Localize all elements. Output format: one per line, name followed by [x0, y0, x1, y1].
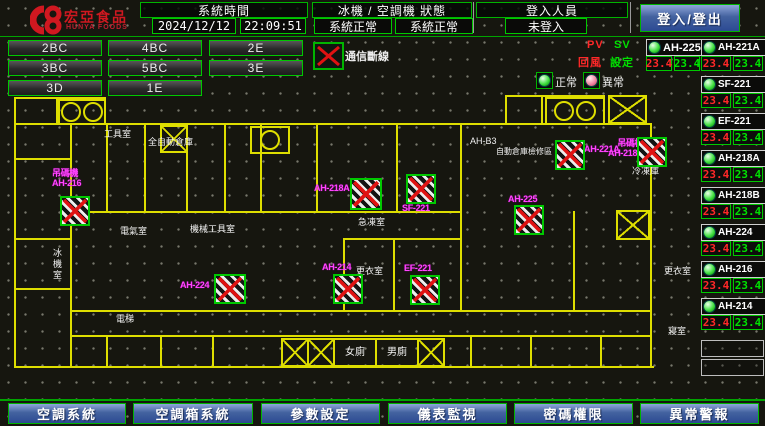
normal-legend-label: 正常	[555, 74, 577, 90]
sv-header: SV	[614, 39, 631, 51]
wall	[14, 97, 16, 368]
room-label: 冷凍庫	[632, 166, 659, 176]
sv-value: 23.4	[733, 130, 763, 145]
brand-name-en: HUNYA FOODS	[66, 24, 128, 31]
offline-device-icon-ah-225[interactable]	[514, 205, 544, 235]
device-label: AH-214	[322, 262, 351, 272]
pv-value: 23.4	[701, 278, 731, 293]
room-label: 自動倉庫檢修區	[496, 147, 552, 157]
nav-parameter-setting[interactable]: 參數設定	[261, 403, 380, 424]
bottombar-separator	[0, 399, 765, 401]
sv-value: 23.4	[733, 241, 763, 256]
floor-button-3d[interactable]: 3D	[8, 80, 102, 96]
normal-lamp-icon	[536, 72, 553, 89]
wall	[316, 123, 318, 213]
pv-header: PV	[587, 39, 604, 51]
room-label: 電梯	[116, 314, 134, 324]
toilet-room: 女廁	[333, 338, 377, 367]
sv-value: 23.4	[733, 315, 763, 330]
pv-value: 23.4	[701, 130, 731, 145]
unit-ah-218a[interactable]: AH-218A	[701, 150, 765, 167]
wall	[70, 310, 652, 312]
elevator-shaft-icon	[608, 95, 647, 124]
wall	[541, 95, 543, 125]
wall	[14, 158, 72, 160]
empty-slot	[701, 359, 764, 376]
elevator-shaft-icon	[616, 210, 650, 240]
header-divider	[630, 2, 631, 33]
wall	[212, 335, 214, 366]
room-label: 急凍室	[358, 217, 385, 227]
pv-value: 23.4	[701, 204, 731, 219]
offline-device-icon-ef-221[interactable]	[410, 275, 440, 305]
unit-ah-216[interactable]: AH-216	[701, 261, 765, 278]
wall	[224, 123, 226, 213]
room-label: 男廁	[387, 348, 407, 358]
wall	[600, 335, 602, 366]
offline-device-icon-ah-221a[interactable]	[555, 140, 585, 170]
pv-value: 23.4	[701, 241, 731, 256]
floor-button-4bc[interactable]: 4BC	[108, 40, 202, 56]
unit-ah-224[interactable]: AH-224	[701, 224, 765, 241]
device-label: 吊碼機AH-216	[52, 168, 81, 188]
wall	[160, 335, 162, 366]
status-lamp-icon	[704, 264, 715, 275]
login-label: 登入人員	[476, 2, 628, 18]
offline-device-icon-ah-214[interactable]	[333, 274, 363, 304]
room-label: AH-B3	[470, 136, 497, 146]
offline-device-icon-sf-221[interactable]	[406, 174, 436, 204]
nav-ahu-system[interactable]: 空調箱系統	[133, 403, 253, 424]
abnormal-lamp-icon	[583, 72, 600, 89]
wall	[343, 238, 462, 240]
system-time-label: 系統時間	[140, 2, 308, 18]
unit-ef-221[interactable]: EF-221	[701, 113, 765, 130]
sv-value: 23.4	[674, 56, 700, 71]
status-lamp-icon	[704, 153, 715, 164]
offline-legend-label: 通信斷線	[345, 48, 389, 64]
status-lamp-icon	[649, 42, 660, 53]
topbar-separator	[0, 36, 765, 37]
floor-button-5bc[interactable]: 5BC	[108, 60, 202, 76]
status-lamp-icon	[704, 301, 715, 312]
login-logout-button[interactable]: 登入/登出	[640, 4, 740, 32]
room-label: 寢室	[668, 326, 686, 336]
pv-value: 23.4	[701, 56, 731, 71]
offline-device-icon-ah-224[interactable]	[214, 274, 246, 304]
logo-icon	[30, 5, 64, 35]
unit-sf-221[interactable]: SF-221	[701, 76, 765, 93]
pv-row-label: 回風	[578, 54, 602, 70]
sv-value: 23.4	[733, 167, 763, 182]
room-label: 冰機室	[52, 248, 62, 281]
offline-legend-icon	[313, 42, 344, 70]
unit-ah-218b[interactable]: AH-218B	[701, 187, 765, 204]
pv-value: 23.4	[701, 93, 731, 108]
nav-hvac-system[interactable]: 空調系統	[8, 403, 126, 424]
room-label: 機械工具室	[190, 224, 235, 234]
logo: 宏亞食品 HUNYA FOODS	[2, 2, 137, 36]
wall	[460, 123, 462, 312]
wall	[144, 123, 146, 213]
device-label: AH-225	[508, 194, 537, 204]
machine-status-label: 冰機 / 空調機 狀態	[312, 2, 472, 18]
status-lamp-icon	[704, 116, 715, 127]
wall	[573, 211, 575, 310]
wall	[14, 238, 72, 240]
stairwell-icon	[417, 338, 445, 367]
offline-device-icon-ah-218b[interactable]	[637, 137, 667, 167]
unit-ah-225[interactable]: AH-225	[646, 39, 703, 56]
wall	[70, 335, 652, 337]
hmi-screen: 宏亞食品 HUNYA FOODS 系統時間 2024/12/12 22:09:5…	[0, 0, 765, 426]
device-label: AH-218A	[314, 183, 349, 193]
room-label: 全自動倉庫	[148, 137, 193, 147]
ahu-status: 系統正常	[395, 18, 473, 34]
room-label: 電氣室	[120, 226, 147, 236]
wall	[396, 123, 398, 213]
stair-icon	[58, 99, 106, 125]
stairwell-icon	[281, 338, 309, 367]
status-lamp-icon	[704, 42, 715, 53]
sv-value: 23.4	[733, 278, 763, 293]
toilet-room: 男廁	[375, 338, 419, 367]
nav-alarm[interactable]: 異常警報	[640, 403, 759, 424]
device-label: AH-224	[180, 280, 209, 290]
device-label: SF-221	[402, 203, 430, 213]
pv-value: 23.4	[646, 56, 672, 71]
login-state: 未登入	[505, 18, 587, 34]
status-lamp-icon	[704, 79, 715, 90]
abnormal-legend-label: 異常	[602, 74, 624, 90]
room-label: 更衣室	[664, 266, 691, 276]
unit-ah-221a[interactable]: AH-221A	[701, 39, 765, 56]
floor-button-2e[interactable]: 2E	[209, 40, 303, 56]
header-divider	[473, 2, 474, 33]
wall	[14, 288, 72, 290]
floor-button-1e[interactable]: 1E	[108, 80, 202, 96]
stair-icon	[545, 97, 605, 125]
stairwell-icon	[307, 338, 335, 367]
empty-slot	[701, 340, 764, 357]
system-clock: 22:09:51	[240, 18, 306, 34]
nav-meter-monitor[interactable]: 儀表監視	[388, 403, 507, 424]
stair-icon	[250, 126, 290, 154]
room-label: 工具室	[104, 129, 131, 139]
offline-device-icon-ah-218a[interactable]	[350, 178, 382, 210]
wall	[505, 95, 507, 125]
floor-button-3e[interactable]: 3E	[209, 60, 303, 76]
status-lamp-icon	[704, 227, 715, 238]
floor-button-3bc[interactable]: 3BC	[8, 60, 102, 76]
wall	[530, 335, 532, 366]
unit-ah-214[interactable]: AH-214	[701, 298, 765, 315]
pv-value: 23.4	[701, 167, 731, 182]
pv-value: 23.4	[701, 315, 731, 330]
wall	[106, 335, 108, 366]
chiller-status: 系統正常	[314, 18, 392, 34]
device-label: EF-221	[404, 263, 432, 273]
offline-device-icon-ah-216[interactable]	[60, 196, 90, 226]
system-date: 2024/12/12	[152, 18, 236, 34]
wall	[393, 238, 395, 312]
status-lamp-icon	[704, 190, 715, 201]
sv-value: 23.4	[733, 56, 763, 71]
sv-value: 23.4	[733, 204, 763, 219]
floor-button-2bc[interactable]: 2BC	[8, 40, 102, 56]
sv-value: 23.4	[733, 93, 763, 108]
nav-password-auth[interactable]: 密碼權限	[514, 403, 633, 424]
sv-row-label: 設定	[610, 54, 634, 70]
room-label: 女廁	[345, 348, 365, 358]
wall	[470, 335, 472, 366]
